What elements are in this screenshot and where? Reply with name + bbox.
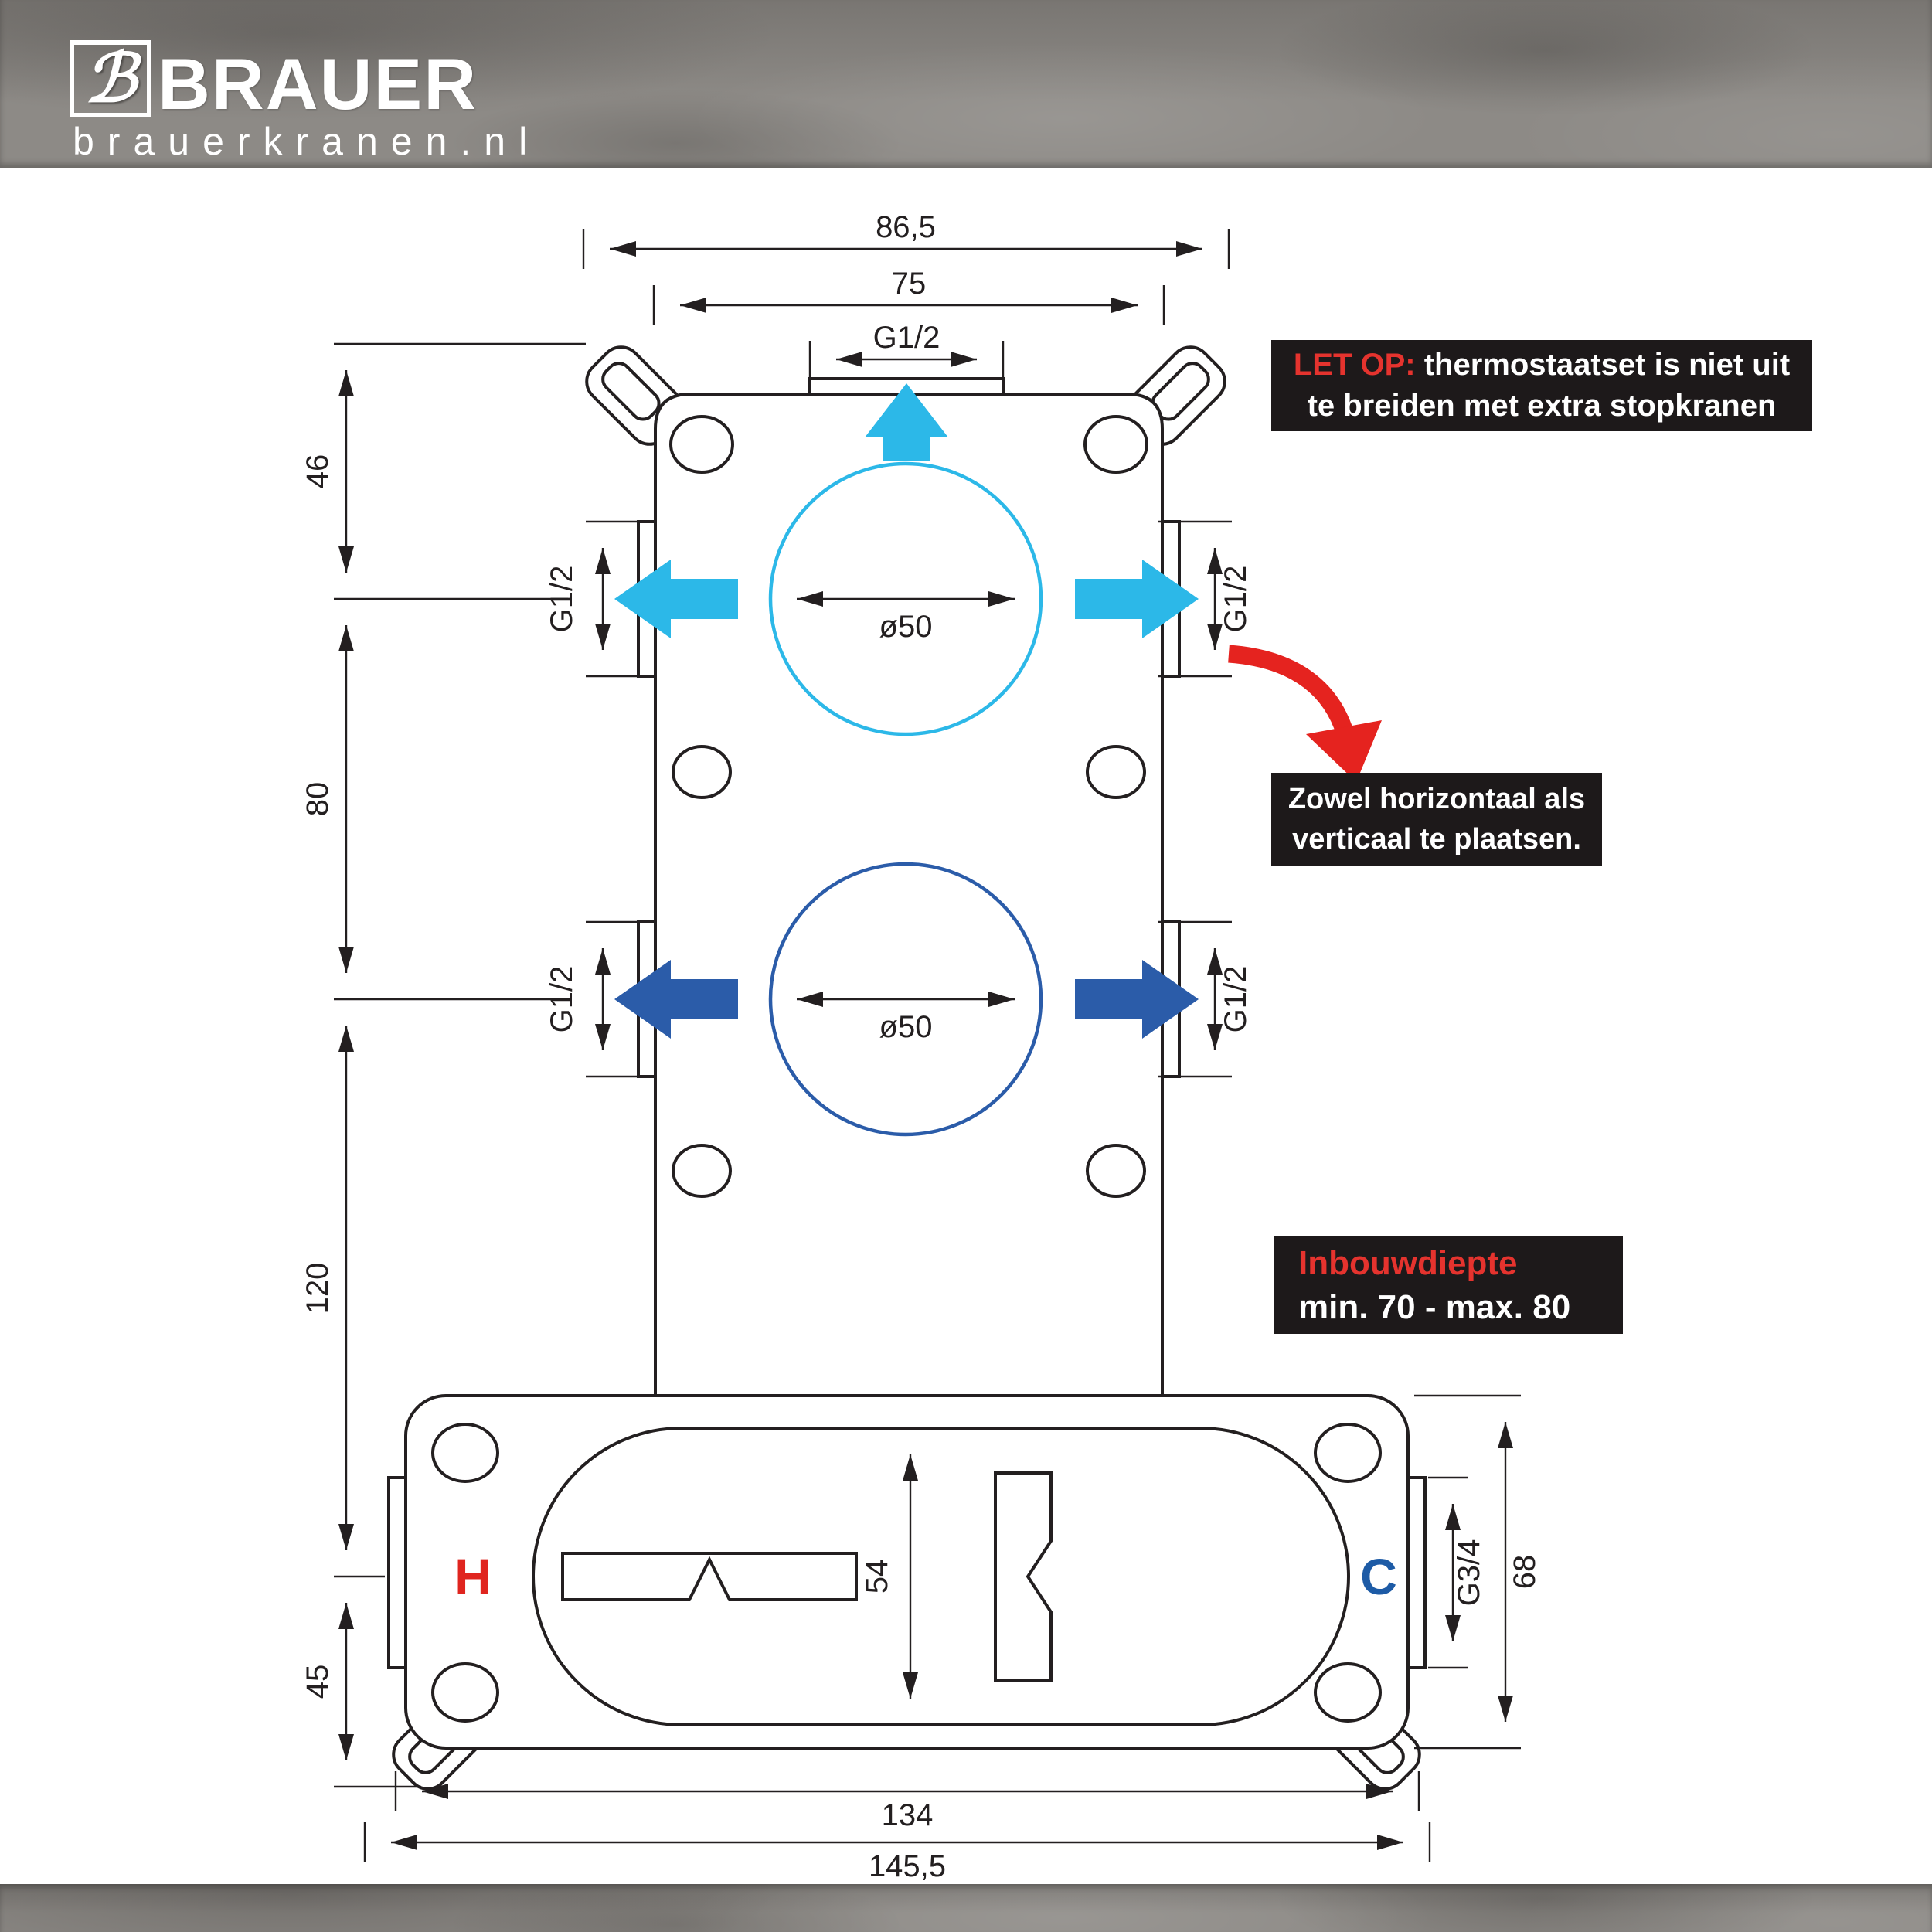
warning-line-1: LET OP: thermostaatset is niet uit	[1271, 345, 1812, 386]
warning-prefix: LET OP:	[1294, 348, 1416, 382]
dim-housing-height: 68	[1508, 1555, 1542, 1590]
page: ℬ BRAUER brauerkranen.nl	[0, 0, 1932, 1932]
valve-outlines	[385, 338, 1427, 1797]
dim-top-outlet: G1/2	[873, 321, 940, 355]
hot-inlet-flange	[389, 1478, 406, 1668]
dim-valve-body-height: 54	[860, 1560, 894, 1594]
dim-lower-left-port: G1/2	[545, 966, 579, 1033]
dim-top-inner-width: 75	[892, 267, 927, 301]
placement-line-1: Zowel horizontaal als	[1271, 779, 1602, 819]
hot-label: H	[454, 1548, 492, 1605]
depth-range: min. 70 - max. 80	[1298, 1285, 1623, 1329]
warning-text-2: te breiden met extra stopkranen	[1271, 386, 1812, 427]
cold-inlet-flange	[1408, 1478, 1425, 1668]
dim-bottom-outer-width: 145,5	[869, 1849, 946, 1883]
bottom-housing-outline	[406, 1396, 1408, 1748]
dim-cold-inlet: G3/4	[1452, 1539, 1486, 1607]
cold-label: C	[1360, 1548, 1397, 1605]
dim-spacing-circles: 80	[301, 782, 335, 817]
depth-title: Inbouwdiepte	[1298, 1241, 1623, 1285]
dim-bottom-inner-width: 134	[882, 1798, 934, 1832]
placement-line-2: verticaal te plaatsen.	[1271, 819, 1602, 859]
placement-callout: Zowel horizontaal als verticaal te plaat…	[1271, 773, 1602, 866]
valve-body-outline	[655, 394, 1162, 1396]
dim-lower-right-port: G1/2	[1219, 966, 1253, 1033]
dim-upper-left-port: G1/2	[545, 566, 579, 633]
warning-callout: LET OP: thermostaatset is niet uit te br…	[1271, 340, 1812, 431]
dim-spacing-lower: 120	[301, 1263, 335, 1315]
technical-drawing: 86,5 75 G1/2 46 80 120 45 ø50 ø50 G1/2 G…	[0, 0, 1932, 1932]
warning-text-1: thermostaatset is niet uit	[1424, 348, 1790, 382]
dim-top-outer-width: 86,5	[876, 210, 936, 244]
depth-callout: Inbouwdiepte min. 70 - max. 80	[1274, 1236, 1623, 1334]
dim-upper-right-port: G1/2	[1219, 566, 1253, 633]
dim-upper-circle-diameter: ø50	[879, 610, 933, 644]
dim-offset-bottom: 45	[301, 1665, 335, 1699]
dim-lower-circle-diameter: ø50	[879, 1010, 933, 1044]
dim-offset-top: 46	[301, 454, 335, 489]
curved-pointer-arrow-icon	[1229, 654, 1382, 782]
